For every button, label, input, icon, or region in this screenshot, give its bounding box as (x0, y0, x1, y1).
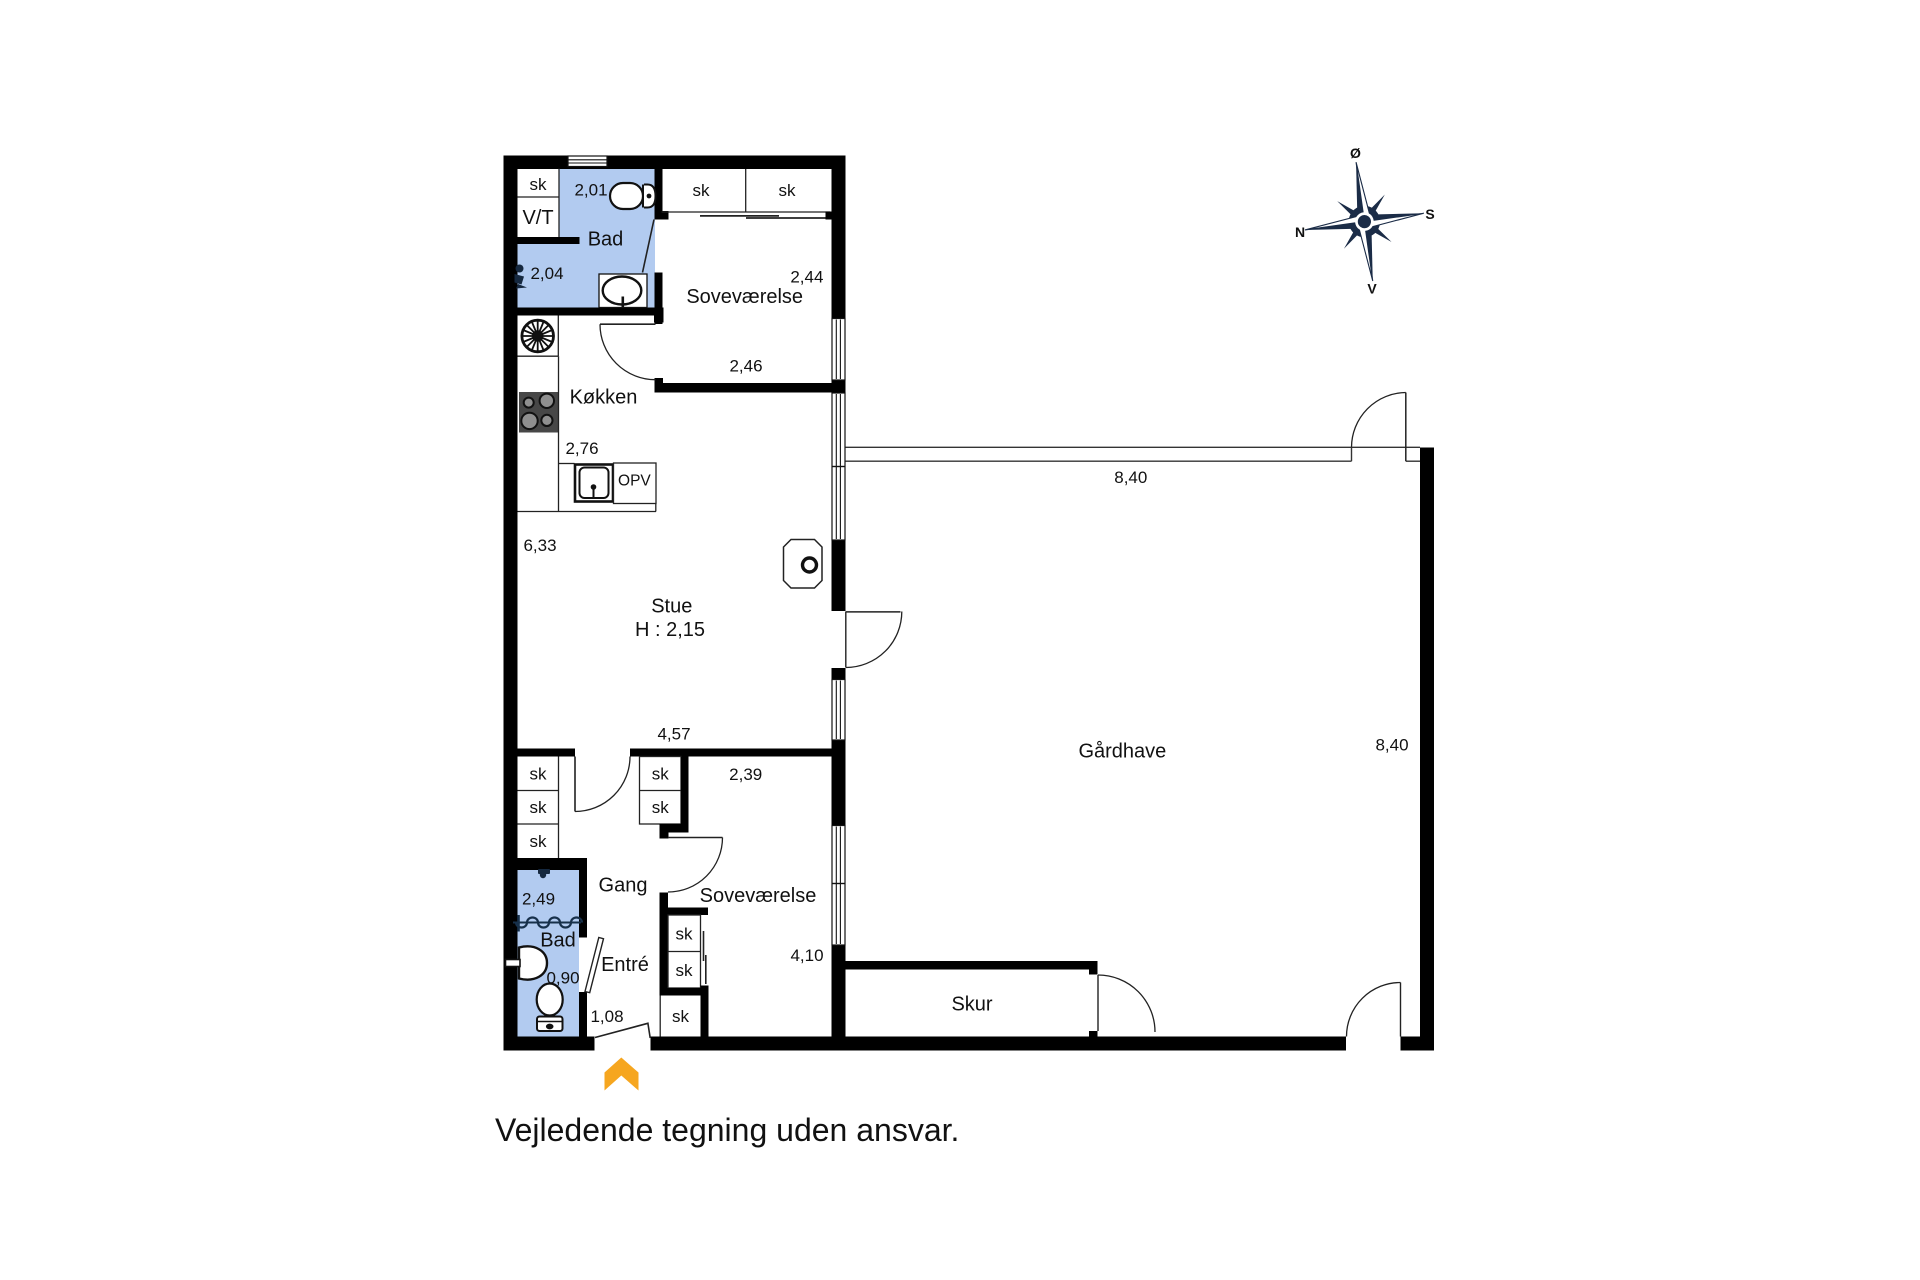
svg-text:Gang: Gang (599, 874, 648, 896)
svg-text:sk: sk (530, 765, 548, 784)
svg-text:sk: sk (676, 961, 694, 980)
svg-text:Skur: Skur (951, 993, 992, 1015)
svg-text:Køkken: Køkken (570, 386, 638, 408)
svg-text:2,01: 2,01 (574, 180, 607, 199)
svg-text:sk: sk (530, 175, 548, 194)
svg-text:OPV: OPV (618, 473, 651, 490)
svg-text:Bad: Bad (588, 228, 624, 250)
svg-text:Gårdhave: Gårdhave (1078, 741, 1166, 763)
svg-text:1,08: 1,08 (590, 1007, 623, 1026)
svg-text:H : 2,15: H : 2,15 (635, 619, 705, 641)
svg-text:8,40: 8,40 (1375, 735, 1408, 754)
svg-text:2,04: 2,04 (530, 264, 563, 283)
svg-text:Bad: Bad (540, 929, 576, 951)
svg-text:Stue: Stue (651, 596, 692, 618)
svg-text:sk: sk (779, 181, 797, 200)
svg-text:2,39: 2,39 (729, 765, 762, 784)
svg-text:2,76: 2,76 (565, 439, 598, 458)
svg-text:0,90: 0,90 (546, 969, 579, 988)
svg-text:2,49: 2,49 (522, 890, 555, 909)
svg-text:V: V (1367, 281, 1377, 297)
svg-text:sk: sk (672, 1007, 690, 1026)
svg-text:sk: sk (530, 832, 548, 851)
svg-text:Soveværelse: Soveværelse (700, 885, 817, 907)
svg-text:Entré: Entré (601, 954, 649, 976)
svg-text:sk: sk (530, 798, 548, 817)
svg-text:sk: sk (652, 798, 670, 817)
svg-text:S: S (1425, 206, 1434, 222)
svg-text:Ø: Ø (1350, 145, 1361, 161)
svg-text:N: N (1295, 224, 1305, 240)
svg-text:Soveværelse: Soveværelse (686, 286, 803, 308)
svg-text:4,10: 4,10 (790, 946, 823, 965)
svg-text:6,33: 6,33 (523, 536, 556, 555)
svg-text:2,46: 2,46 (729, 357, 762, 376)
svg-text:8,40: 8,40 (1114, 468, 1147, 487)
svg-text:sk: sk (652, 765, 670, 784)
svg-text:sk: sk (693, 181, 711, 200)
svg-text:sk: sk (676, 925, 694, 944)
svg-text:2,44: 2,44 (790, 267, 823, 286)
svg-text:4,57: 4,57 (657, 725, 690, 744)
svg-text:Vejledende tegning uden ansvar: Vejledende tegning uden ansvar. (495, 1112, 959, 1148)
svg-text:V/T: V/T (522, 207, 553, 229)
